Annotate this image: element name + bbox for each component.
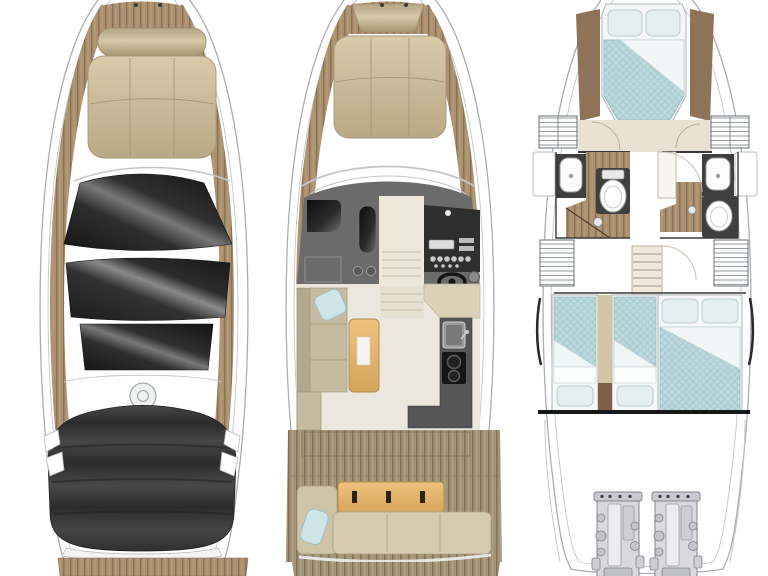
salon-steps [380,286,424,318]
pillow [702,299,738,323]
bow-sunpad [88,56,216,158]
compass [445,210,451,216]
side-locker [533,152,555,196]
engine-room-bulkhead [538,410,750,414]
cockpit-table [338,482,444,513]
swim-platform [58,558,248,576]
dinette-table [349,319,379,392]
pillow [646,10,680,36]
yacht-floorplan-diagram [0,0,768,576]
helm-seat [307,200,341,232]
lower-deck-plan [533,0,757,576]
anchor-locker [352,4,424,32]
instrument-display [429,240,454,249]
bow-cleat [404,3,408,7]
nightstand [598,383,612,411]
port-head-toilet [600,170,626,212]
sunroof-panel [66,258,230,321]
port-head [556,152,630,238]
wardrobe [540,240,574,286]
wardrobe [714,240,748,286]
table-hinge [420,491,425,503]
bow-sunpad [334,36,446,138]
table-hinge [352,491,357,503]
pillow [557,386,593,406]
copilot-seat [359,206,376,253]
table-hinge [386,491,391,503]
cabin-skylight [80,324,213,370]
pillow [617,386,653,406]
pillow [662,299,698,323]
exterior-top-view [40,0,248,576]
port-engine [592,492,644,576]
head-door [658,152,676,198]
shower-drain [688,206,696,214]
galley-cooktop [442,352,466,384]
forward-cabin-trim-starboard [690,9,714,121]
throttle-control [469,272,480,283]
cupholder [354,267,363,276]
bow-cleat [158,3,162,7]
starboard-double-bed [658,295,742,411]
pillow [608,10,642,36]
swim-platform [292,562,500,576]
faucet [716,174,720,178]
bow-cleat [380,3,384,7]
forward-cabin-bed [602,4,686,122]
switch-panel [459,246,474,251]
cupholder [367,267,376,276]
companionway-steps [379,196,424,284]
bow-cleat [134,3,138,7]
faucet [569,174,573,178]
starboard-engine [650,492,702,576]
hull-window [537,298,541,365]
shower-drain [594,218,603,227]
sunpad-backrest [98,28,206,56]
main-deck-plan [286,0,502,576]
between-beds-walkway [598,295,612,383]
switch-panel [459,238,474,243]
cockpit-canvas-cover [48,406,236,552]
port-twin-beds [552,295,658,411]
galley-sink [443,322,469,348]
starboard-head-toilet [706,201,732,231]
forward-cabin-trim-port [576,9,600,121]
